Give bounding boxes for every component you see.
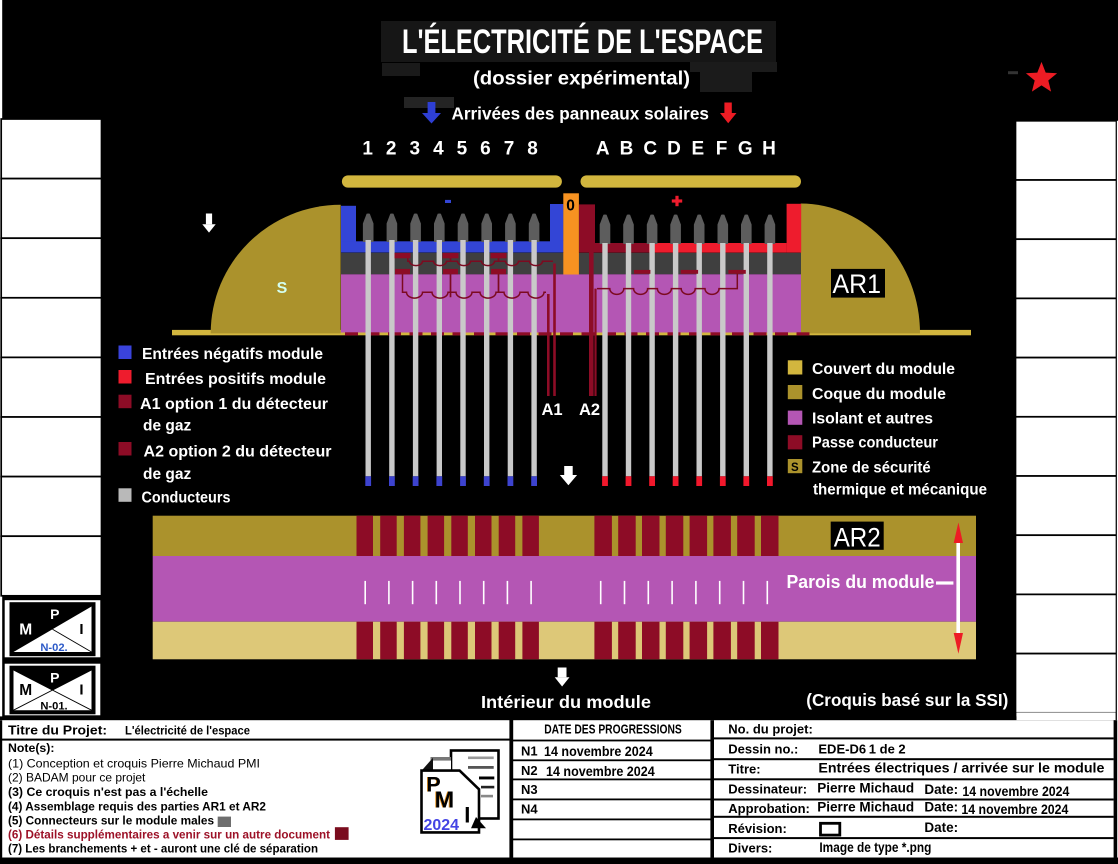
svg-text:Zone de sécurité: Zone de sécurité — [812, 459, 931, 476]
svg-text:A1: A1 — [541, 401, 562, 419]
svg-text:A1 option 1 du détecteur: A1 option 1 du détecteur — [140, 396, 328, 413]
svg-text:H: H — [762, 138, 776, 159]
svg-text:Titre:: Titre: — [728, 762, 760, 777]
svg-text:14 novembre 2024: 14 novembre 2024 — [962, 783, 1069, 799]
svg-text:F: F — [716, 138, 728, 159]
svg-text:AR2: AR2 — [834, 522, 881, 552]
svg-text:(5) Connecteurs sur le module: (5) Connecteurs sur le module males — [8, 814, 214, 828]
svg-text:3: 3 — [410, 138, 421, 159]
svg-text:Arrivées des panneaux solaires: Arrivées des panneaux solaires — [451, 104, 709, 124]
svg-text:(7) Les branchements + et - au: (7) Les branchements + et - auront une c… — [8, 842, 318, 856]
svg-text:5: 5 — [457, 138, 468, 159]
svg-text:Révision:: Révision: — [728, 821, 787, 836]
svg-text:Parois du module: Parois du module — [787, 572, 935, 592]
svg-text:G: G — [738, 138, 753, 159]
svg-text:Conducteurs: Conducteurs — [142, 489, 231, 506]
svg-text:EDE-D6: EDE-D6 — [818, 741, 866, 756]
svg-text:Entrées négatifs module: Entrées négatifs module — [142, 346, 323, 363]
svg-text:A2 option 2 du détecteur: A2 option 2 du détecteur — [144, 443, 332, 460]
svg-text:0: 0 — [566, 198, 575, 215]
svg-text:de gaz: de gaz — [143, 418, 191, 435]
svg-text:(4) Assemblage requis des part: (4) Assemblage requis des parties AR1 et… — [8, 799, 266, 813]
svg-text:(1) Conception et croquis Pier: (1) Conception et croquis Pierre Michaud… — [8, 756, 260, 770]
svg-text:Note(s):: Note(s): — [8, 741, 54, 755]
svg-text:14 novembre 2024: 14 novembre 2024 — [544, 744, 653, 759]
svg-text:DATE DES PROGRESSIONS: DATE DES PROGRESSIONS — [544, 723, 682, 737]
svg-text:Pierre Michaud: Pierre Michaud — [817, 780, 914, 795]
svg-text:L'ÉLECTRICITÉ DE L'ESPACE: L'ÉLECTRICITÉ DE L'ESPACE — [402, 23, 763, 61]
svg-text:C: C — [643, 138, 657, 159]
svg-text:Coque du module: Coque du module — [812, 386, 946, 403]
svg-text:Pierre Michaud: Pierre Michaud — [817, 800, 914, 815]
svg-text:Intérieur du module: Intérieur du module — [481, 692, 651, 712]
svg-text:thermique et mécanique: thermique et mécanique — [813, 481, 987, 498]
svg-text:Titre du Projet:: Titre du Projet: — [8, 724, 107, 738]
svg-text:N3: N3 — [521, 782, 538, 797]
svg-text:I: I — [464, 803, 470, 828]
svg-text:1 de 2: 1 de 2 — [869, 741, 906, 756]
svg-text:N4: N4 — [521, 802, 538, 817]
svg-text:Date:: Date: — [924, 820, 958, 835]
svg-text:No. du projet:: No. du projet: — [728, 721, 813, 736]
svg-text:Divers:: Divers: — [728, 840, 772, 855]
svg-text:M: M — [435, 787, 455, 813]
svg-text:I: I — [79, 682, 83, 699]
svg-text:6: 6 — [480, 138, 491, 159]
svg-text:N2: N2 — [521, 763, 538, 778]
svg-text:7: 7 — [504, 138, 515, 159]
svg-text:I: I — [79, 621, 83, 638]
svg-text:Approbation:: Approbation: — [728, 801, 810, 816]
svg-text:Couvert du module: Couvert du module — [812, 361, 955, 378]
svg-text:A2: A2 — [579, 401, 600, 419]
svg-text:Date:: Date: — [924, 782, 958, 797]
svg-text:Passe conducteur: Passe conducteur — [812, 434, 938, 451]
svg-text:P: P — [50, 606, 59, 622]
svg-text:S: S — [277, 280, 288, 297]
svg-text:1: 1 — [362, 138, 373, 159]
svg-text:M: M — [19, 682, 32, 699]
svg-text:(Croquis basé sur la SSI): (Croquis basé sur la SSI) — [806, 690, 1008, 710]
svg-text:AR1: AR1 — [833, 269, 882, 299]
svg-text:L'électricité de l'espace: L'électricité de l'espace — [125, 724, 250, 738]
svg-text:Entrées électriques / arrivée: Entrées électriques / arrivée sur le mod… — [818, 760, 1104, 776]
svg-text:P: P — [50, 669, 59, 685]
svg-text:2: 2 — [386, 138, 397, 159]
svg-text:14 novembre 2024: 14 novembre 2024 — [961, 801, 1068, 817]
svg-text:(2) BADAM pour ce projet: (2) BADAM pour ce projet — [8, 771, 146, 785]
svg-text:D: D — [667, 138, 681, 159]
svg-text:N1: N1 — [521, 743, 538, 758]
svg-text:Date:: Date: — [924, 800, 958, 815]
svg-text:B: B — [620, 138, 634, 159]
svg-text:N-01.: N-01. — [40, 700, 67, 712]
svg-text:N-02.: N-02. — [40, 642, 67, 654]
svg-text:M: M — [19, 621, 32, 638]
svg-text:4: 4 — [433, 138, 444, 159]
svg-text:Image de type *.png: Image de type *.png — [819, 840, 931, 855]
svg-text:Entrées positifs module: Entrées positifs module — [145, 371, 326, 388]
svg-text:14 novembre 2024: 14 novembre 2024 — [546, 764, 655, 779]
svg-text:(dossier expérimental): (dossier expérimental) — [473, 68, 690, 90]
svg-text:2024: 2024 — [424, 817, 460, 834]
svg-text:8: 8 — [527, 138, 538, 159]
svg-text:S: S — [791, 462, 799, 474]
svg-text:A: A — [596, 138, 610, 159]
svg-text:de gaz: de gaz — [143, 466, 191, 483]
svg-text:Dessin no.:: Dessin no.: — [728, 741, 798, 756]
svg-text:(6) Détails supplémentaires a: (6) Détails supplémentaires a venir sur … — [8, 828, 330, 842]
svg-text:E: E — [691, 138, 704, 159]
svg-text:Dessinateur:: Dessinateur: — [728, 782, 807, 797]
svg-text:Isolant et autres: Isolant et autres — [812, 410, 933, 427]
svg-text:(3) Ce croquis n'est pas a l'é: (3) Ce croquis n'est pas a l'échelle — [8, 785, 208, 799]
